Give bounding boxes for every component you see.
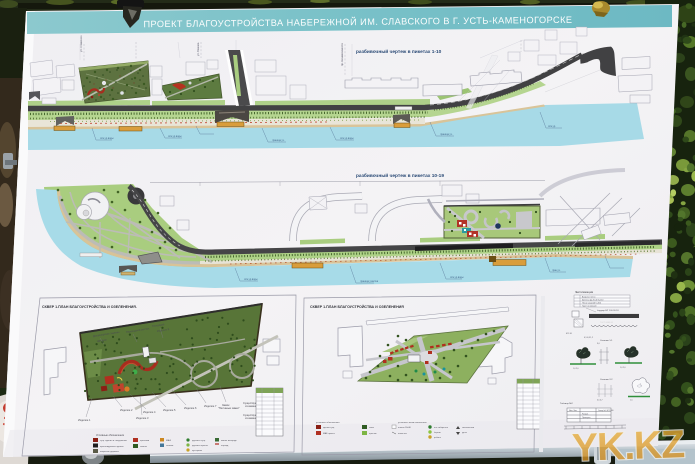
- svg-text:Сечение 1-1: Сечение 1-1: [600, 340, 613, 342]
- svg-text:Изделие 4: Изделие 4: [143, 410, 156, 414]
- svg-text:отм.ур.воды: отм.ур.воды: [244, 278, 258, 281]
- svg-text:условные обозначения: условные обозначения: [316, 422, 340, 424]
- svg-text:СКВЕР 1.ПЛАН БЛАГОУСТРОЙСТВА И: СКВЕР 1.ПЛАН БЛАГОУСТРОЙСТВА И ОЗЕЛЕНЕНИ…: [310, 305, 404, 309]
- svg-text:МАФ проект.: МАФ проект.: [323, 432, 335, 435]
- svg-text:Изделие 7: Изделие 7: [204, 404, 217, 408]
- svg-text:разбивочный чертеж в пикетах 1: разбивочный чертеж в пикетах 10-19: [356, 172, 444, 179]
- svg-text:0,5 0,8 1,2: 0,5 0,8 1,2: [584, 337, 593, 339]
- svg-text:гран.уч.: гран.уч.: [552, 269, 561, 272]
- svg-text:YK.KZ: YK.KZ: [571, 423, 685, 464]
- svg-text:Экспликация: Экспликация: [575, 290, 593, 294]
- svg-text:граница уч.: граница уч.: [440, 133, 453, 136]
- svg-text:рябина: рябина: [434, 437, 442, 439]
- svg-text:Изделие 2: Изделие 2: [120, 408, 133, 412]
- svg-text:отм.ур.воды: отм.ур.воды: [450, 276, 464, 279]
- svg-text:0,5 0,7: 0,5 0,7: [597, 400, 603, 402]
- svg-text:Проверил: Проверил: [582, 417, 590, 419]
- svg-text:1,5: 1,5: [630, 400, 633, 402]
- svg-text:газоны: газоны: [140, 446, 147, 448]
- svg-text:покрытие дорожек: покрытие дорожек: [100, 451, 119, 453]
- svg-text:береза: береза: [434, 432, 442, 434]
- svg-text:ул. Бажова: ул. Бажова: [196, 42, 200, 56]
- svg-text:плитка 30х30: плитка 30х30: [398, 427, 412, 429]
- svg-text:ул. Славского: ул. Славского: [79, 35, 83, 52]
- svg-text:"Песчаные замки": "Песчаные замки": [218, 406, 240, 410]
- svg-text:Асфальт. бетон: Асфальт. бетон: [582, 296, 595, 299]
- svg-text:кустарник: кустарник: [192, 450, 202, 452]
- svg-text:Изм. Лист: Изм. Лист: [569, 410, 577, 412]
- svg-text:Щебень фр.20-40 h=150: Щебень фр.20-40 h=150: [582, 299, 603, 302]
- svg-text:Сквер №1 М 1:500: Сквер №1 М 1:500: [598, 409, 613, 412]
- svg-text:ГОСТ 6665-91: ГОСТ 6665-91: [600, 322, 614, 324]
- svg-text:живая изгородь: живая изгородь: [221, 440, 238, 442]
- svg-text:СКВЕР 1.ПЛАН БЛАГОУСТРОЙСТВА И: СКВЕР 1.ПЛАН БЛАГОУСТРОЙСТВА И ОЗЕЛЕНЕНИ…: [42, 305, 137, 309]
- svg-text:проектируемые здания: проектируемые здания: [100, 446, 124, 448]
- svg-text:3,0: 3,0: [597, 343, 600, 345]
- svg-text:Изделие 6: Изделие 6: [184, 406, 197, 410]
- svg-text:МАФ: МАФ: [166, 439, 171, 442]
- svg-text:отм.ур.воды: отм.ур.воды: [340, 137, 354, 140]
- svg-text:ель сибирская: ель сибирская: [434, 427, 448, 429]
- svg-text:разбивочный чертеж в пикетах 1: разбивочный чертеж в пикетах 1-10: [356, 48, 442, 55]
- svg-text:граница участка: граница участка: [360, 280, 379, 283]
- svg-text:1,0 2,0: 1,0 2,0: [620, 367, 626, 369]
- svg-text:Разраб.: Разраб.: [582, 414, 589, 416]
- svg-text:светильники: светильники: [462, 427, 475, 429]
- svg-text:Таблица №2: Таблица №2: [560, 402, 574, 405]
- svg-text:отм.ур.: отм.ур.: [548, 125, 556, 128]
- svg-text:бордюр БР 100.30.18: бордюр БР 100.30.18: [597, 310, 619, 312]
- svg-text:пр. Независимости: пр. Независимости: [340, 43, 344, 66]
- svg-text:Изделие 3: Изделие 3: [136, 416, 149, 420]
- svg-text:деревья проект.: деревья проект.: [192, 445, 209, 447]
- svg-text:урны: урны: [462, 432, 467, 434]
- svg-text:отм.ур.воды: отм.ур.воды: [168, 135, 182, 138]
- svg-text:Изделие 1: Изделие 1: [78, 418, 91, 422]
- svg-text:здания сущ.: здания сущ.: [323, 427, 335, 429]
- svg-text:Условные обозначения: Условные обозначения: [96, 433, 125, 437]
- svg-text:М 1:10: М 1:10: [566, 333, 572, 335]
- svg-text:скамьи: скамьи: [166, 445, 174, 447]
- svg-text:отм.ур.воды: отм.ур.воды: [100, 137, 114, 140]
- svg-text:огражд.: огражд.: [221, 445, 229, 447]
- svg-text:сущ. здания и сооружения: сущ. здания и сооружения: [100, 440, 128, 442]
- svg-text:граница уч.: граница уч.: [272, 139, 285, 142]
- svg-text:деревья сущ.: деревья сущ.: [192, 440, 206, 442]
- svg-text:1,0 2,0: 1,0 2,0: [573, 368, 579, 370]
- svg-text:Изделие 5: Изделие 5: [163, 408, 176, 412]
- svg-text:условные знаки озеленения: условные знаки озеленения: [398, 422, 427, 424]
- svg-text:Грунт основания: Грунт основания: [582, 305, 597, 307]
- svg-text:цветник: цветник: [369, 433, 377, 435]
- svg-text:Песок средний h=100: Песок средний h=100: [582, 302, 601, 305]
- svg-text:Сечение 2-2: Сечение 2-2: [600, 379, 613, 381]
- svg-text:отмостка: отмостка: [398, 433, 408, 435]
- svg-text:газон: газон: [369, 427, 374, 429]
- svg-text:цветники: цветники: [140, 440, 150, 442]
